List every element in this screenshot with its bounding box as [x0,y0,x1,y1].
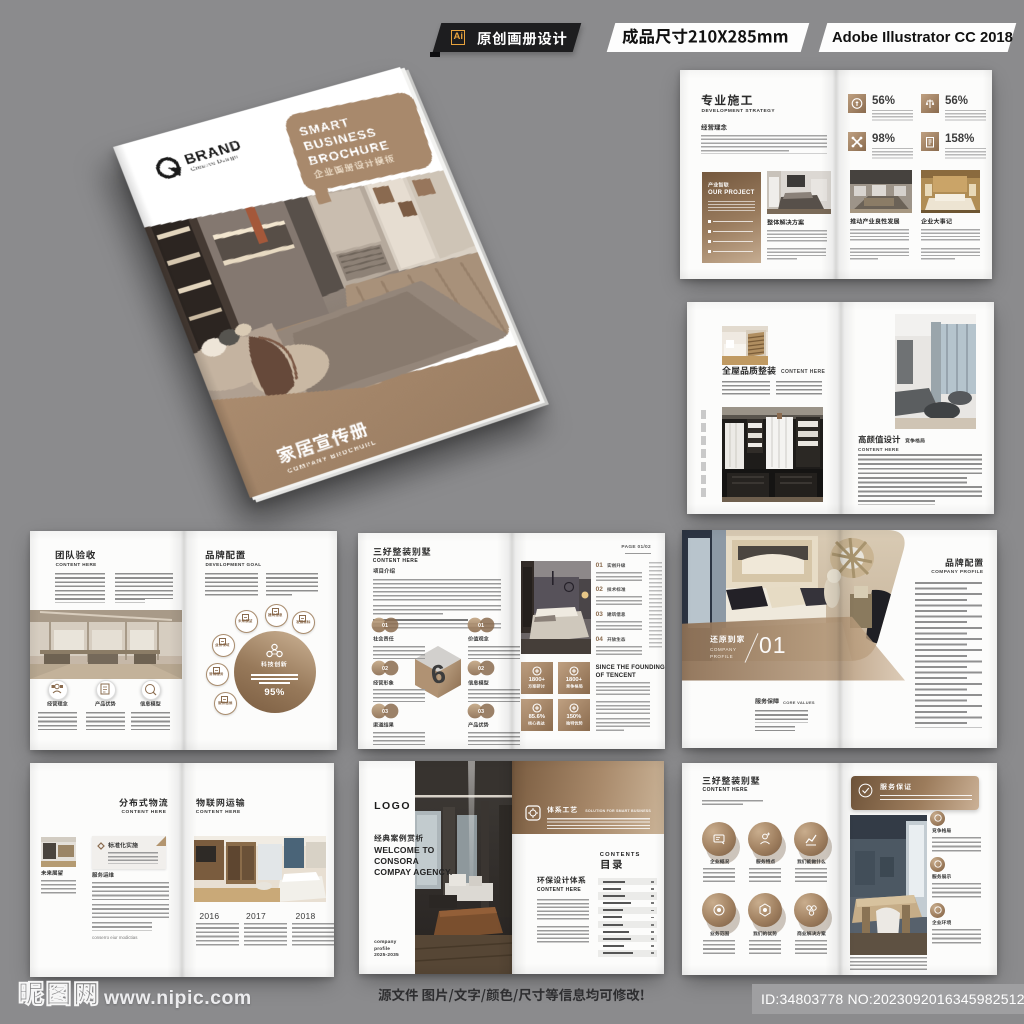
svg-text:02: 02 [478,667,484,673]
svg-text:03: 03 [478,709,484,715]
svg-text:01: 01 [382,623,388,629]
svg-text:02: 02 [382,667,388,673]
svg-text:03: 03 [382,709,388,715]
svg-text:01: 01 [478,623,484,629]
